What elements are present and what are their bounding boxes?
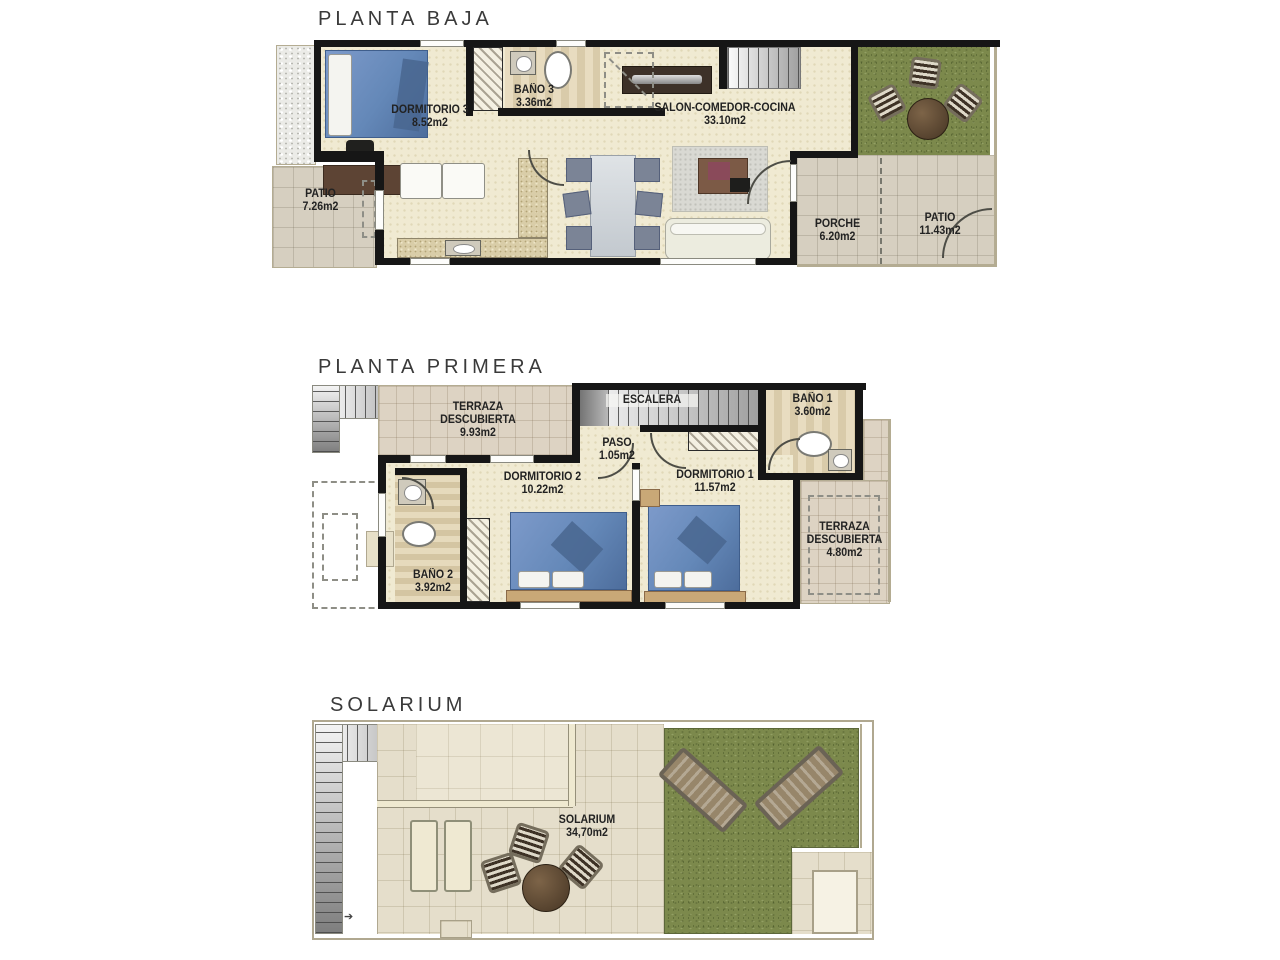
- gravel-strip: [276, 45, 316, 165]
- tile-tab: [440, 920, 472, 938]
- garden-table: [522, 864, 570, 912]
- bathroom-sink: [828, 449, 852, 471]
- stair-direction-arrow: ➔: [344, 910, 353, 923]
- window: [410, 258, 450, 265]
- patio-step-dashed: [362, 180, 376, 238]
- floor-title-planta-baja: PLANTA BAJA: [318, 8, 493, 31]
- planta-baja-plan: DORMITORIO 3 8.52m2 BAÑO 3 3.36m2 SALON-…: [270, 40, 1002, 272]
- room-area: 4.80m2: [805, 547, 883, 560]
- room-name: ESCALERA: [606, 394, 698, 407]
- window: [665, 602, 725, 609]
- room-area: 11.57m2: [660, 482, 770, 495]
- room-label-salon: SALON-COMEDOR-COCINA 33.10m2: [633, 102, 817, 128]
- wall: [572, 383, 580, 463]
- window: [520, 602, 580, 609]
- dining-chair: [634, 158, 660, 182]
- window: [556, 40, 586, 47]
- room-name: TERRAZA DESCUBIERTA: [805, 521, 883, 547]
- room-label-terraza-9: TERRAZA DESCUBIERTA 9.93m2: [423, 401, 533, 440]
- wall: [572, 383, 866, 390]
- floor-title-planta-primera: PLANTA PRIMERA: [318, 356, 546, 379]
- wall: [314, 151, 384, 162]
- stair-void-dashed: [322, 513, 358, 581]
- sofa: [665, 218, 771, 260]
- room-area: 3.36m2: [488, 97, 580, 110]
- room-area: 6.20m2: [798, 231, 876, 244]
- room-name: BAÑO 3: [488, 84, 580, 97]
- room-area: 7.26m2: [281, 201, 359, 214]
- window: [378, 493, 386, 537]
- window: [660, 258, 756, 265]
- lounger-flat: [410, 820, 438, 892]
- wall: [790, 151, 858, 158]
- wall: [314, 40, 321, 158]
- planta-primera-plan: TERRAZA DESCUBIERTA 9.93m2 ESCALERA PASO…: [310, 383, 906, 612]
- dining-chair: [635, 191, 663, 218]
- room-area: 11.43m2: [889, 225, 990, 238]
- wall: [851, 40, 858, 158]
- wall: [855, 383, 863, 480]
- room-name: DORMITORIO 1: [660, 469, 770, 482]
- room-name: PASO: [585, 437, 649, 450]
- room-label-bano-2: BAÑO 2 3.92m2: [401, 569, 465, 595]
- room-label-bano-3: BAÑO 3 3.36m2: [488, 84, 580, 110]
- table-decor: [708, 162, 730, 180]
- lounger-flat: [444, 820, 472, 892]
- room-name: PORCHE: [798, 218, 876, 231]
- porch-door-opening: [790, 164, 797, 202]
- table-decor: [730, 178, 750, 192]
- floorplan-canvas: PLANTA BAJA PLANTA PRIMERA SOLARIUM: [0, 0, 1280, 960]
- toilet: [796, 431, 832, 457]
- room-label-patio-11: PATIO 11.43m2: [889, 212, 990, 238]
- room-area: 8.52m2: [361, 117, 499, 130]
- room-name: SOLARIUM: [532, 814, 642, 827]
- bed-pillow: [654, 571, 682, 588]
- window: [490, 455, 534, 463]
- grass-area: [664, 846, 792, 934]
- dining-table: [590, 155, 636, 257]
- dining-chair: [562, 190, 591, 217]
- garden-table: [907, 98, 949, 140]
- room-name: BAÑO 2: [401, 569, 465, 582]
- room-label-paso: PASO 1.05m2: [585, 437, 649, 463]
- wall: [395, 468, 467, 475]
- patio-door-opening: [375, 190, 384, 230]
- boundary-line: [994, 42, 997, 266]
- bed-pillow: [518, 571, 550, 588]
- room-label-terraza-4: TERRAZA DESCUBIERTA 4.80m2: [805, 521, 883, 560]
- stairs: [312, 385, 340, 453]
- room-label-escalera: ESCALERA: [606, 394, 698, 407]
- boundary-line: [888, 419, 891, 602]
- door-opening: [632, 469, 640, 501]
- room-label-dormitorio-2: DORMITORIO 2 10.22m2: [490, 471, 596, 497]
- bed-pillow: [328, 54, 352, 136]
- window: [420, 40, 464, 47]
- room-name: SALON-COMEDOR-COCINA: [633, 102, 817, 115]
- room-name: TERRAZA DESCUBIERTA: [423, 401, 533, 427]
- wall: [719, 47, 727, 89]
- nightstand: [640, 489, 660, 507]
- room-area: 33.10m2: [633, 115, 817, 128]
- wall: [640, 425, 760, 432]
- room-label-solarium: SOLARIUM 34,70m2: [532, 814, 642, 840]
- terrace-floor: [863, 419, 890, 482]
- room-area: 10.22m2: [490, 484, 596, 497]
- room-label-bano-1: BAÑO 1 3.60m2: [773, 393, 851, 419]
- kitchen-sink: [445, 240, 481, 256]
- kitchen-appliance: [442, 163, 485, 199]
- room-name: DORMITORIO 3: [361, 104, 499, 117]
- garden-chair: [908, 56, 942, 90]
- room-label-dormitorio-3: DORMITORIO 3 8.52m2: [361, 104, 499, 130]
- room-label-dormitorio-1: DORMITORIO 1 11.57m2: [660, 469, 770, 495]
- kitchen-appliance: [400, 163, 442, 199]
- porch-patio-divider: [880, 158, 882, 264]
- stairs: [315, 724, 343, 934]
- room-area: 3.92m2: [401, 582, 465, 595]
- solarium-plan: ➔ SOLARIUM 34,70m2: [312, 718, 890, 942]
- room-name: PATIO: [281, 188, 359, 201]
- room-area: 34,70m2: [532, 827, 642, 840]
- room-name: PATIO: [889, 212, 990, 225]
- room-area: 3.60m2: [773, 406, 851, 419]
- toilet: [402, 521, 436, 547]
- terrace-inset: [812, 870, 858, 934]
- bed-pillow: [552, 571, 584, 588]
- stairs: [727, 47, 801, 89]
- room-name: DORMITORIO 2: [490, 471, 596, 484]
- room-label-porche: PORCHE 6.20m2: [798, 218, 876, 244]
- room-name: BAÑO 1: [773, 393, 851, 406]
- bed-bench: [506, 590, 632, 602]
- room-area: 1.05m2: [585, 450, 649, 463]
- room-label-patio-7: PATIO 7.26m2: [281, 188, 359, 214]
- wall: [314, 40, 1000, 47]
- wall: [766, 473, 863, 480]
- room-area: 9.93m2: [423, 427, 533, 440]
- window: [410, 455, 446, 463]
- dining-chair: [566, 158, 592, 182]
- dining-chair: [566, 226, 592, 250]
- bed-pillow: [684, 571, 712, 588]
- parapet-wall: [568, 724, 576, 806]
- dining-chair: [634, 226, 660, 250]
- wall: [378, 602, 800, 609]
- bathroom-sink: [510, 51, 536, 75]
- wall: [378, 455, 578, 463]
- walkway-tiles: [416, 724, 570, 802]
- parapet-wall: [377, 800, 573, 808]
- escalera-dark-end: [578, 390, 608, 426]
- boundary-line: [860, 724, 862, 848]
- stair-landing: [343, 762, 378, 934]
- wall: [793, 473, 800, 609]
- floor-title-solarium: SOLARIUM: [330, 694, 466, 717]
- boundary-line: [797, 264, 997, 267]
